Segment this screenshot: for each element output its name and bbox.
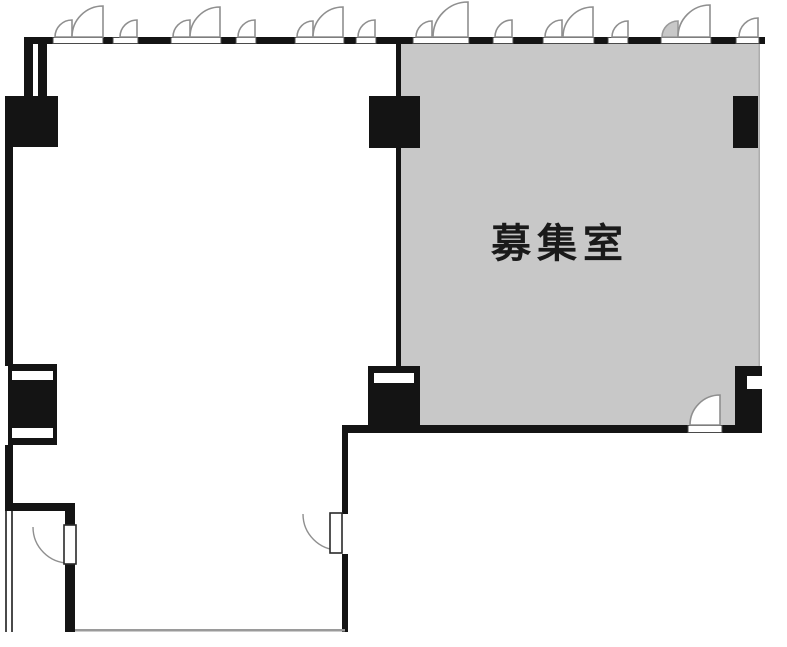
window-arc-small [495, 20, 512, 37]
window-arc-small [55, 20, 72, 37]
pillar-top-left [5, 96, 58, 147]
window-arc-small [545, 20, 562, 37]
left-exterior-wall-upper [5, 147, 13, 366]
room-label: 募集室 [490, 221, 629, 267]
balcony-line-outer [5, 511, 7, 632]
window-sill [295, 38, 344, 44]
window-arc-large [313, 7, 343, 37]
window-arc-small [612, 21, 628, 37]
pillar-top-right [733, 96, 758, 148]
thin-boundary-lines [5, 511, 345, 632]
pillar-mid-center-vent [374, 373, 414, 383]
window-arc-large [433, 2, 468, 37]
window-sill [543, 38, 594, 44]
balcony-line-inner [11, 511, 13, 632]
lower-partition-wall-upper [342, 425, 348, 514]
lower-room-floor-line [75, 629, 345, 632]
window-sill [493, 38, 513, 44]
window-sill [53, 38, 103, 44]
pillar-top-center [369, 96, 420, 148]
left-window-mullion-outer [24, 43, 33, 97]
window-swing-arcs [55, 2, 758, 37]
window-arc-small [662, 21, 678, 37]
pillar-mid-left-vent-lower [12, 428, 53, 438]
window-arc-small [739, 18, 758, 37]
left-window-mullion-inner [38, 43, 47, 97]
window-sill [413, 38, 469, 44]
window-arc-large [563, 7, 593, 37]
window-arc-small [238, 20, 255, 37]
pillar-mid-left-vent-upper [12, 371, 53, 380]
window-arc-small [120, 20, 137, 37]
window-sill [236, 38, 256, 44]
door-leaf [64, 525, 76, 564]
window-arc-large [72, 6, 103, 37]
floorplan-canvas: 募集室 [0, 0, 787, 647]
right-wall-notch [747, 376, 762, 389]
floorplan-drawing: 募集室 [0, 0, 787, 647]
window-sill [661, 38, 711, 44]
window-arc-large [678, 5, 710, 37]
window-sill [113, 38, 138, 44]
corridor-wall [65, 503, 75, 632]
door-leaf [330, 513, 342, 553]
lower-partition-wall-lower [342, 554, 348, 632]
window-sill [608, 38, 628, 44]
window-arc-small [173, 20, 190, 37]
window-arc-large [190, 7, 220, 37]
window-sill [736, 38, 759, 44]
window-sill [356, 38, 376, 44]
window-arc-small [297, 21, 313, 37]
vacant-room-door-sill [688, 426, 722, 433]
window-arc-small [416, 21, 432, 37]
window-sill [171, 38, 221, 44]
window-arc-small [358, 20, 375, 37]
left-exterior-wall-lower [5, 445, 13, 504]
left-jog-wall [5, 503, 73, 511]
